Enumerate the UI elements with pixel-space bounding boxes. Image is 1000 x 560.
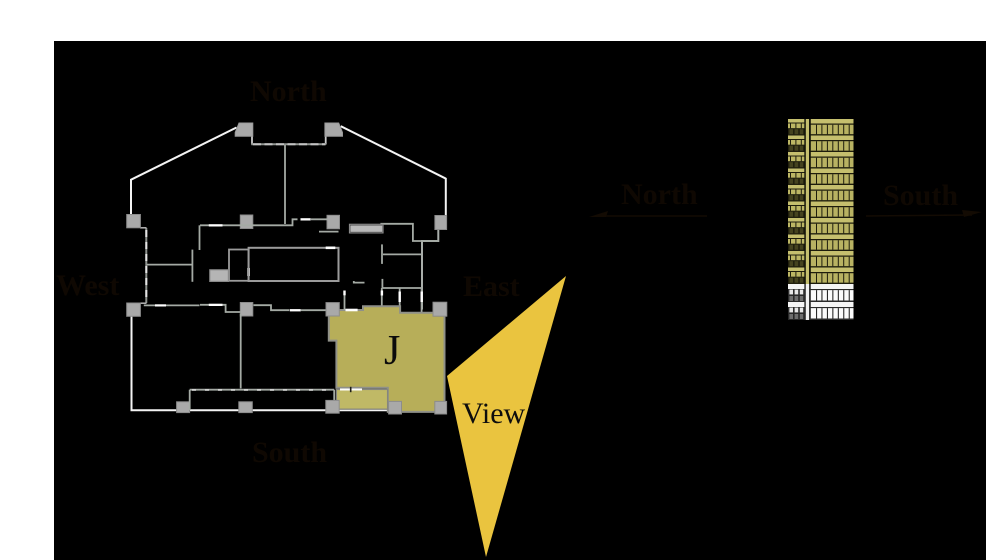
svg-text:South: South xyxy=(883,179,958,212)
svg-text:East: East xyxy=(463,270,520,303)
svg-text:West: West xyxy=(56,269,119,302)
svg-text:South: South xyxy=(252,436,327,469)
svg-text:North: North xyxy=(621,178,698,211)
svg-text:View: View xyxy=(462,397,526,430)
svg-text:J: J xyxy=(384,328,400,374)
svg-text:North: North xyxy=(250,75,327,108)
